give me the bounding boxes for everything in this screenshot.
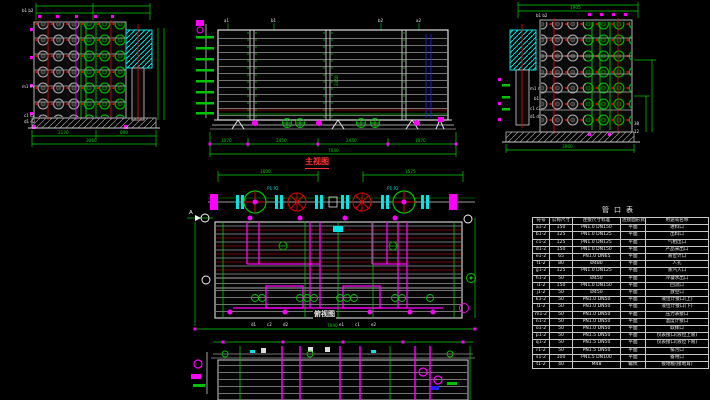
cell-face: 平面 bbox=[621, 297, 646, 304]
table-row: o1-2 50 PN1.0 DN50 平面 取样口 bbox=[533, 326, 709, 333]
cell-use: 温度计接口 bbox=[646, 318, 709, 325]
right-dim-top: 1905 bbox=[570, 5, 581, 10]
cell-use: 液位计接口(下) bbox=[646, 304, 709, 311]
table-row: d1-2 150 PN1.0 DN150 平面 产品采出口 bbox=[533, 246, 709, 253]
right-tag-b: b1 bbox=[534, 96, 540, 101]
cell-use: 人孔 bbox=[646, 261, 709, 268]
cell-face: 平面 bbox=[621, 304, 646, 311]
plan-tag-d1: d1 bbox=[251, 322, 257, 327]
rear-tag-boxes bbox=[261, 347, 330, 353]
right-view-base bbox=[502, 132, 640, 142]
cell-standard: PN1.0 DN125 bbox=[573, 268, 621, 275]
table-row: c1-2 125 PN1.0 DN125 平面 气相出口 bbox=[533, 239, 709, 246]
cell-dn: 50 bbox=[550, 347, 573, 354]
cell-face: 平面 bbox=[621, 239, 646, 246]
cell-standard: PN1.0 DN150 bbox=[573, 225, 621, 232]
cell-dn: 125 bbox=[550, 232, 573, 239]
cell-standard: Ø450 bbox=[573, 275, 621, 282]
cell-face: 平面 bbox=[621, 275, 646, 282]
front-shell bbox=[218, 30, 448, 120]
cell-use: 放空口 bbox=[646, 290, 709, 297]
cell-dn: 125 bbox=[550, 268, 573, 275]
cell-symbol: i1-2 bbox=[533, 282, 550, 289]
plan-pump-handwheel-left bbox=[244, 191, 266, 213]
cell-face: 平面 bbox=[621, 318, 646, 325]
front-tag-b2: b2 bbox=[378, 18, 384, 23]
cell-use: 产品采出口 bbox=[646, 246, 709, 253]
col-header-dn: 公称尺寸 bbox=[550, 218, 573, 225]
cell-face: 平面 bbox=[621, 326, 646, 333]
table-row: h1-2 50 Ø450 平面 冷凝水出口 bbox=[533, 275, 709, 282]
cell-face: 平面 bbox=[621, 268, 646, 275]
cell-standard: PN1.5 DN50 bbox=[573, 340, 621, 347]
front-inner-dim: 2450 bbox=[334, 75, 339, 86]
dim-left-a: 2170 bbox=[58, 130, 69, 135]
plan-dim-total: 7040 bbox=[327, 323, 338, 328]
cell-face: 平面 bbox=[621, 225, 646, 232]
plan-bottom-tags: d1 c2 d2 e1 c1 e2 bbox=[251, 322, 376, 327]
cell-dn: 50 bbox=[550, 340, 573, 347]
cell-face: 平面 bbox=[621, 282, 646, 289]
cell-dn: 50 bbox=[550, 297, 573, 304]
rear-elevation-partial bbox=[183, 334, 485, 400]
plan-pipe-train: P1 P2 P1 P2 bbox=[208, 186, 475, 221]
front-top-nozzle-tags: a1 b1 b2 a2 bbox=[224, 18, 421, 30]
plan-pump-handwheel-right bbox=[393, 191, 415, 213]
right-dim-total: 3060 bbox=[562, 144, 573, 149]
cell-symbol: o1-2 bbox=[533, 326, 550, 333]
cell-symbol: s1-2 bbox=[533, 354, 550, 361]
cell-use: 仪表接口(液位上限) bbox=[646, 333, 709, 340]
right-view-dimensions-bottom: 3060 bbox=[506, 144, 634, 153]
cell-standard: PN1.0 DN50 bbox=[573, 304, 621, 311]
left-view-dimensions-bottom: 2170 890 3060 bbox=[32, 130, 156, 147]
cell-dn: 150 bbox=[550, 282, 573, 289]
cell-dn: 40 bbox=[550, 362, 573, 369]
right-side-label-a: 38 bbox=[634, 121, 640, 126]
left-view-dimensions-top bbox=[36, 3, 150, 20]
plan-shell bbox=[215, 222, 462, 318]
cell-dn: 50 bbox=[550, 304, 573, 311]
dim-left-total: 3060 bbox=[86, 138, 97, 143]
cell-symbol: t1-2 bbox=[533, 362, 550, 369]
cell-standard: PN1.5 DN50 bbox=[573, 333, 621, 340]
table-row: k1-2 50 PN1.0 DN50 平面 液位计接口(上) bbox=[533, 297, 709, 304]
cell-symbol: n1-2 bbox=[533, 318, 550, 325]
nozzle-table-title: 管口表 bbox=[532, 205, 708, 215]
table-row: n1-2 50 PN1.0 DN50 平面 温度计接口 bbox=[533, 318, 709, 325]
cell-use: 蒸汽入口 bbox=[646, 268, 709, 275]
cell-dn: 100 bbox=[550, 354, 573, 361]
table-row: g1-2 125 PN1.0 DN125 平面 蒸汽入口 bbox=[533, 268, 709, 275]
cell-standard: PN1.0 DN150 bbox=[573, 246, 621, 253]
cell-standard: PN1.0 DN150 bbox=[573, 282, 621, 289]
cell-symbol: j1-2 bbox=[533, 290, 550, 297]
table-row: p1-2 50 PN1.5 DN50 平面 仪表接口(液位上限) bbox=[533, 333, 709, 340]
cell-dn: 50 bbox=[550, 311, 573, 318]
cell-dn: 150 bbox=[550, 246, 573, 253]
rear-left-cluster bbox=[191, 352, 207, 394]
cell-dn: 50 bbox=[550, 275, 573, 282]
cell-use: 取样口 bbox=[646, 326, 709, 333]
front-dim-4: 1070 bbox=[415, 138, 426, 143]
front-dim-2: 2450 bbox=[276, 138, 287, 143]
cell-use: 压力表接口 bbox=[646, 311, 709, 318]
plan-dim-right: 1575 bbox=[405, 169, 416, 174]
cell-standard: PN1.0 DN125 bbox=[573, 239, 621, 246]
left-view-base bbox=[28, 118, 160, 128]
cell-use: 出料口 bbox=[646, 232, 709, 239]
front-dim-total: 7040 bbox=[328, 148, 339, 153]
dim-left-b: 890 bbox=[120, 130, 128, 135]
plan-tag-e2: e2 bbox=[371, 322, 376, 327]
cell-use: 备用口 bbox=[646, 354, 709, 361]
cell-symbol: e1-2 bbox=[533, 254, 550, 261]
rear-dimension-top bbox=[213, 341, 473, 344]
cell-dn: 50 bbox=[550, 318, 573, 325]
cell-standard: PN1.0 DN50 bbox=[573, 318, 621, 325]
plan-pump-tag-left: P1 P2 bbox=[267, 186, 279, 191]
cell-symbol: h1-2 bbox=[533, 275, 550, 282]
cell-face: 平面 bbox=[621, 290, 646, 297]
table-row: e1-2 65 PN1.0 DN65 平面 液位计口 bbox=[533, 254, 709, 261]
cell-use: 冷凝水出口 bbox=[646, 275, 709, 282]
table-row: b1-2 125 PN1.0 DN125 平面 出料口 bbox=[533, 232, 709, 239]
plan-dimensions-top: 1600 1575 bbox=[218, 169, 463, 182]
table-row: f1-2 80 Ø480 平面 人孔 bbox=[533, 261, 709, 268]
left-view-header-box bbox=[126, 24, 164, 122]
cell-standard: PN1.0 DN50 bbox=[573, 311, 621, 318]
front-tag-a2: a2 bbox=[416, 18, 421, 23]
cell-dn: 80 bbox=[550, 261, 573, 268]
cell-standard: PN1.0 DN50 bbox=[573, 326, 621, 333]
cell-face: 平面 bbox=[621, 232, 646, 239]
cell-use: 进料口 bbox=[646, 225, 709, 232]
table-row: q1-2 50 PN1.5 DN50 平面 仪表接口(液位下限) bbox=[533, 340, 709, 347]
table-row: j1-2 50 Ø450 平面 放空口 bbox=[533, 290, 709, 297]
left-view-tag-top: b1 b2 bbox=[22, 8, 34, 13]
cell-standard: PN1.0 DN50 bbox=[573, 297, 621, 304]
cell-symbol: k1-2 bbox=[533, 297, 550, 304]
table-row: s1-2 100 PN1.5 DN100 平面 备用口 bbox=[533, 354, 709, 361]
cell-symbol: l1-2 bbox=[533, 304, 550, 311]
cell-face: 平面 bbox=[621, 311, 646, 318]
cell-face: 平面 bbox=[621, 340, 646, 347]
cell-face: 平面 bbox=[621, 254, 646, 261]
cell-use: 接地板(接地耳) bbox=[646, 362, 709, 369]
table-row: r1-2 50 PN1.5 DN50 平面 排污口 bbox=[533, 347, 709, 354]
plan-pump-tag-right: P1 P2 bbox=[387, 186, 399, 191]
nozzle-table: 管口表 符号 公称尺寸 连接尺寸标准 连接面形式 用途或名称 a1-2 150 … bbox=[532, 205, 708, 369]
right-end-view: 1905 b1 b2 m1 m2 b1 c1 c2 d1 d2 bbox=[488, 0, 666, 158]
front-elevation-view: a1 b1 b2 a2 2450 bbox=[188, 14, 474, 166]
nozzle-table-grid: 符号 公称尺寸 连接尺寸标准 连接面形式 用途或名称 a1-2 150 PN1.… bbox=[532, 217, 709, 369]
cell-face: 平面 bbox=[621, 261, 646, 268]
cell-symbol: q1-2 bbox=[533, 340, 550, 347]
cell-standard: PN1.0 DN65 bbox=[573, 254, 621, 261]
cell-symbol: g1-2 bbox=[533, 268, 550, 275]
plan-train-nodes bbox=[248, 216, 398, 221]
cell-use: 排污口 bbox=[646, 347, 709, 354]
right-view-tube-bundle bbox=[540, 13, 632, 136]
front-tag-b1: b1 bbox=[271, 18, 277, 23]
front-tag-a1: a1 bbox=[224, 18, 229, 23]
cell-symbol: a1-2 bbox=[533, 225, 550, 232]
cell-use: 气相出口 bbox=[646, 239, 709, 246]
table-row: t1-2 40 M48 螺纹 接地板(接地耳) bbox=[533, 362, 709, 369]
plan-cyan-fitting bbox=[333, 226, 343, 232]
table-row: a1-2 150 PN1.0 DN150 平面 进料口 bbox=[533, 225, 709, 232]
left-view-tube-bundle bbox=[34, 20, 126, 120]
nozzle-table-header-row: 符号 公称尺寸 连接尺寸标准 连接面形式 用途或名称 bbox=[533, 218, 709, 225]
plan-tag-e1: e1 bbox=[339, 322, 344, 327]
cell-face: 平面 bbox=[621, 333, 646, 340]
plan-tag-c1: c1 bbox=[355, 322, 360, 327]
cell-use: 液位计口 bbox=[646, 254, 709, 261]
cell-standard: Ø450 bbox=[573, 290, 621, 297]
cell-dn: 125 bbox=[550, 239, 573, 246]
plan-tag-d2: d2 bbox=[283, 322, 289, 327]
front-dimension-chain: 1070 2450 2450 1070 7040 bbox=[209, 132, 458, 157]
col-header-symbol: 符号 bbox=[533, 218, 550, 225]
right-tag-top: b1 b2 bbox=[536, 13, 548, 18]
cell-dn: 50 bbox=[550, 333, 573, 340]
cell-symbol: b1-2 bbox=[533, 232, 550, 239]
plan-section-label: A bbox=[189, 210, 193, 216]
cell-dn: 150 bbox=[550, 225, 573, 232]
cell-symbol: r1-2 bbox=[533, 347, 550, 354]
cell-symbol: c1-2 bbox=[533, 239, 550, 246]
cell-symbol: p1-2 bbox=[533, 333, 550, 340]
cell-face: 平面 bbox=[621, 246, 646, 253]
table-row: m1-2 50 PN1.0 DN50 平面 压力表接口 bbox=[533, 311, 709, 318]
left-end-view: b1 b2 m1 m2 c1 c2 d1 d2 bbox=[20, 0, 190, 158]
table-row: l1-2 50 PN1.0 DN50 平面 液位计接口(下) bbox=[533, 304, 709, 311]
cell-standard: PN1.5 DN100 bbox=[573, 354, 621, 361]
cell-use: 仪表接口(液位下限) bbox=[646, 340, 709, 347]
cell-symbol: m1-2 bbox=[533, 311, 550, 318]
cell-dn: 65 bbox=[550, 254, 573, 261]
cell-use: 液位计接口(上) bbox=[646, 297, 709, 304]
cad-drawing-canvas: b1 b2 m1 m2 c1 c2 d1 d2 bbox=[0, 0, 710, 400]
cell-standard: PN1.5 DN50 bbox=[573, 347, 621, 354]
right-side-label-b: 12 bbox=[634, 129, 640, 134]
cell-use: 回流口 bbox=[646, 282, 709, 289]
cell-standard: PN1.0 DN125 bbox=[573, 232, 621, 239]
col-header-use: 用途或名称 bbox=[646, 218, 709, 225]
cell-dn: 50 bbox=[550, 290, 573, 297]
front-dim-1: 1070 bbox=[221, 138, 232, 143]
cell-standard: Ø480 bbox=[573, 261, 621, 268]
front-dim-3: 2450 bbox=[346, 138, 357, 143]
col-header-face: 连接面形式 bbox=[621, 218, 646, 225]
cell-face: 平面 bbox=[621, 354, 646, 361]
plan-view-title: 俯视图 bbox=[313, 309, 336, 319]
cell-face: 螺纹 bbox=[621, 362, 646, 369]
table-row: i1-2 150 PN1.0 DN150 平面 回流口 bbox=[533, 282, 709, 289]
cell-dn: 50 bbox=[550, 326, 573, 333]
plan-dim-left: 1600 bbox=[260, 169, 271, 174]
plan-tag-c2: c2 bbox=[267, 322, 272, 327]
right-view-header-box bbox=[498, 24, 536, 128]
cell-symbol: d1-2 bbox=[533, 246, 550, 253]
cell-face: 平面 bbox=[621, 347, 646, 354]
cell-symbol: f1-2 bbox=[533, 261, 550, 268]
col-header-standard: 连接尺寸标准 bbox=[573, 218, 621, 225]
cell-standard: M48 bbox=[573, 362, 621, 369]
